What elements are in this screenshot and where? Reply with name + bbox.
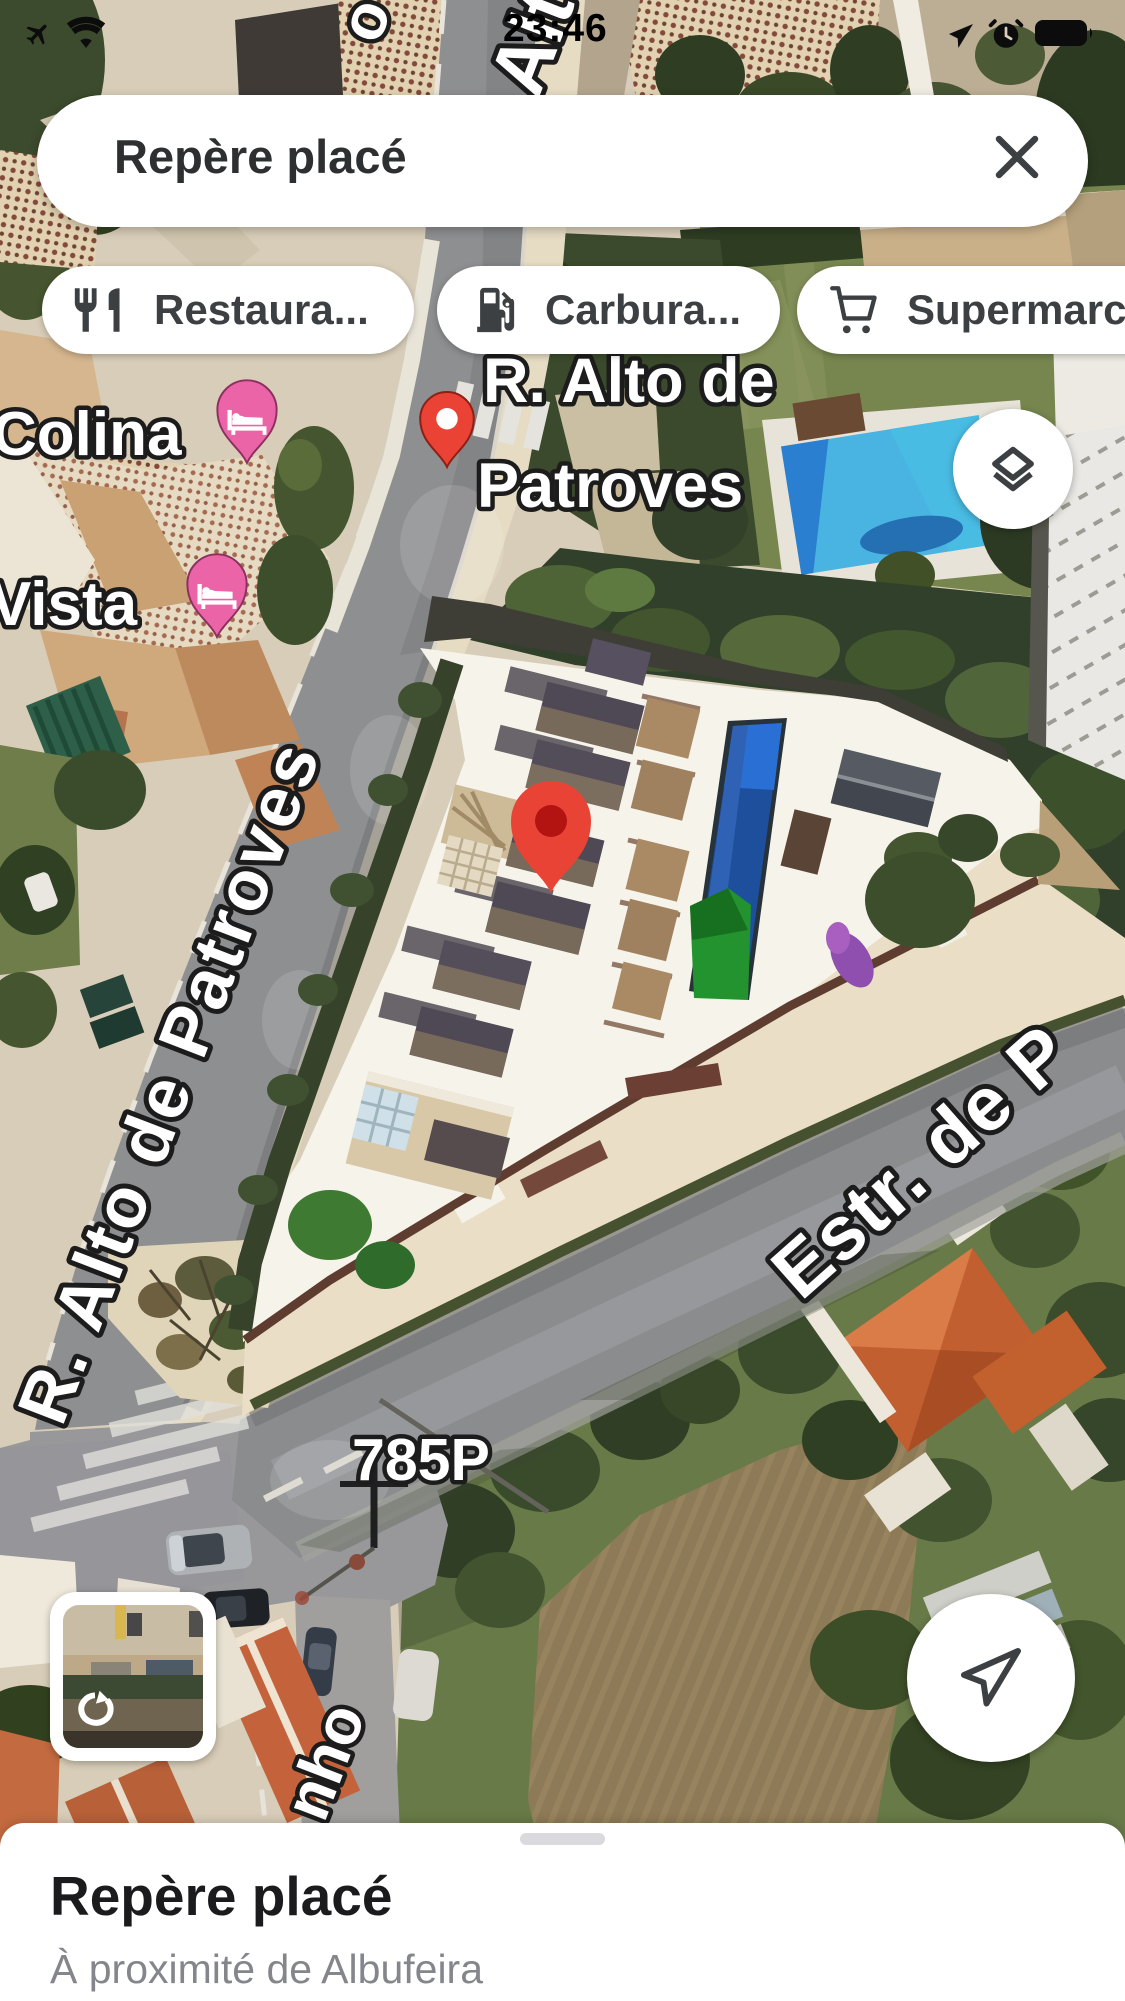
svg-text:Colina: Colina: [0, 400, 182, 469]
svg-text:R. Alto de: R. Alto de: [483, 346, 775, 416]
svg-text:785P: 785P: [352, 1427, 490, 1493]
svg-text:Vista: Vista: [0, 570, 138, 639]
svg-text:Patroves: Patroves: [477, 451, 743, 521]
